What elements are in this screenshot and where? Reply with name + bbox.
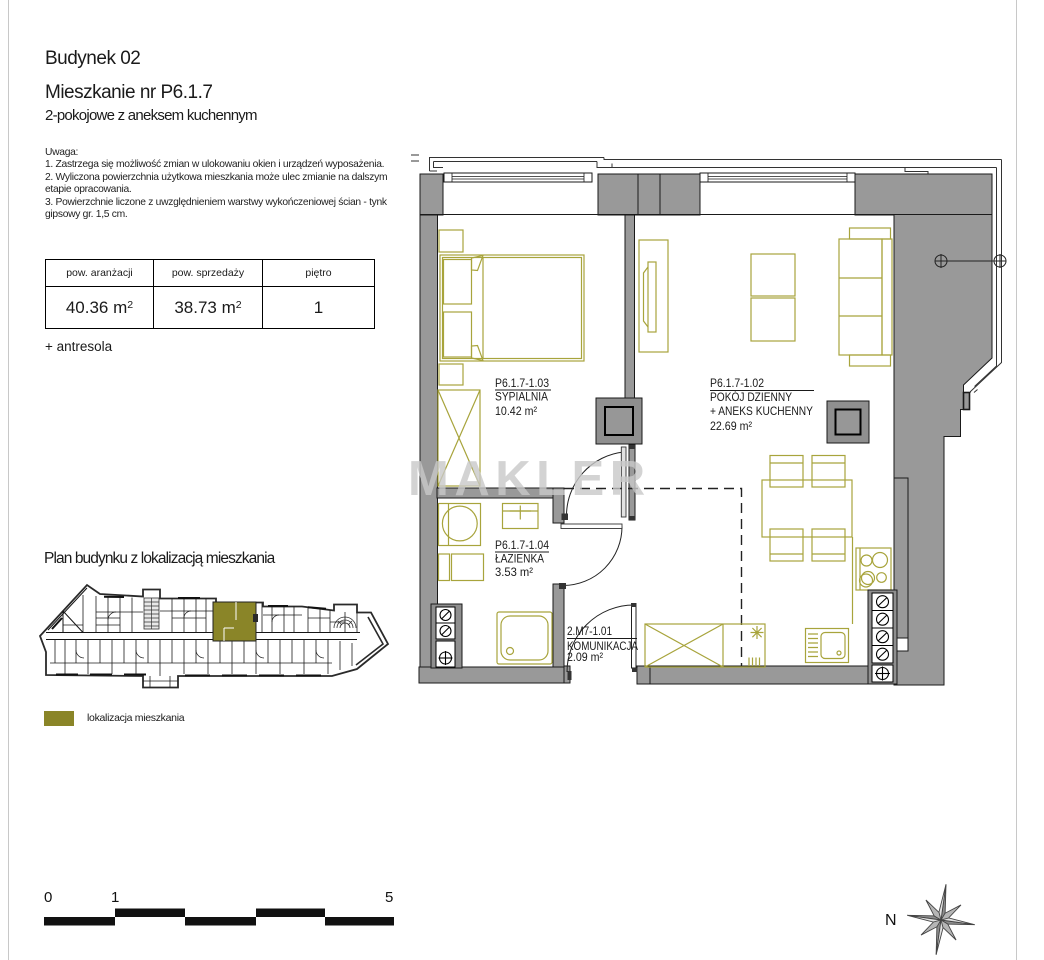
svg-text:+ ANEKS KUCHENNY: + ANEKS KUCHENNY [710, 404, 813, 418]
svg-text:3.53 m²: 3.53 m² [495, 565, 533, 579]
svg-text:MAKLER: MAKLER [408, 452, 651, 506]
svg-text:5: 5 [385, 889, 393, 906]
svg-text:N: N [885, 912, 897, 929]
svg-text:2.M7-1.01: 2.M7-1.01 [567, 624, 612, 638]
svg-text:10.42 m²: 10.42 m² [495, 404, 537, 418]
svg-text:P6.1.7-1.02: P6.1.7-1.02 [710, 376, 764, 390]
svg-text:POKÓJ DZIENNY: POKÓJ DZIENNY [710, 389, 792, 404]
svg-text:P6.1.7-1.04: P6.1.7-1.04 [495, 538, 549, 552]
svg-text:2.09 m²: 2.09 m² [567, 650, 603, 664]
svg-text:ŁAZIENKA: ŁAZIENKA [495, 552, 544, 566]
svg-text:SYPIALNIA: SYPIALNIA [495, 390, 548, 404]
svg-text:1: 1 [111, 889, 119, 906]
svg-text:0: 0 [44, 889, 52, 906]
svg-text:P6.1.7-1.03: P6.1.7-1.03 [495, 376, 549, 390]
svg-text:22.69 m²: 22.69 m² [710, 419, 752, 433]
